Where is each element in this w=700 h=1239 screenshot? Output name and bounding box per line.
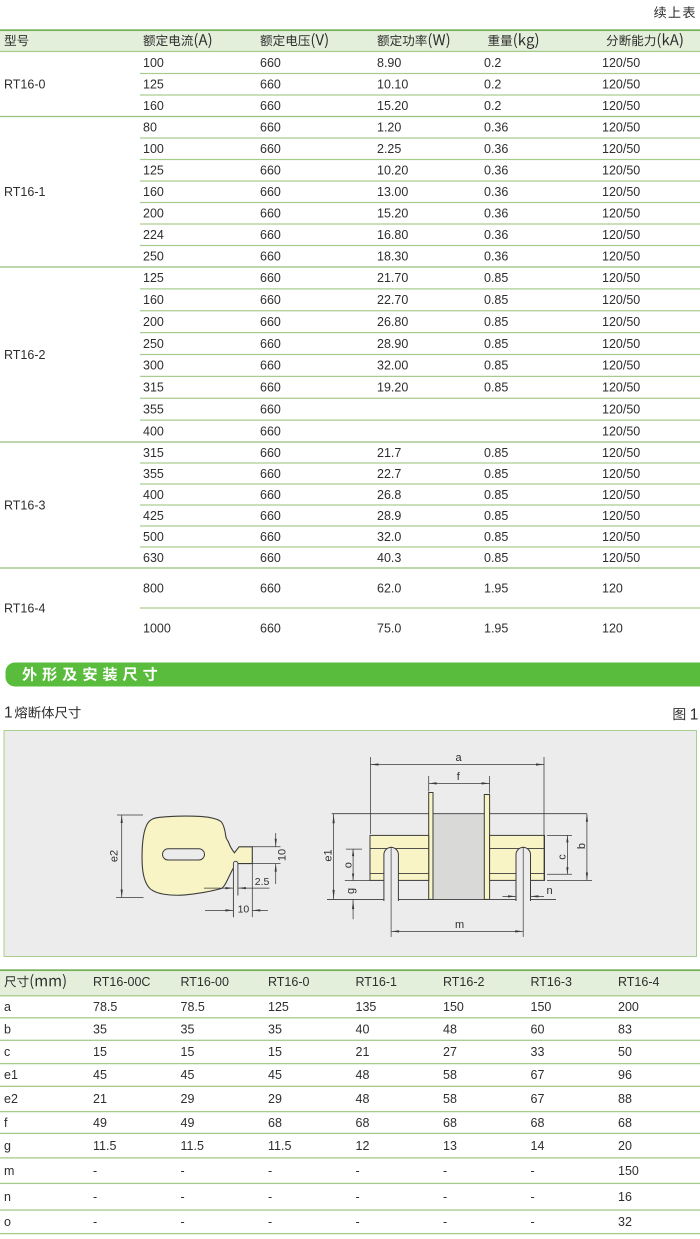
svg-text:160: 160 <box>143 99 164 113</box>
svg-text:96: 96 <box>618 1068 632 1082</box>
svg-text:120/50: 120/50 <box>602 207 640 221</box>
svg-text:120/50: 120/50 <box>602 315 640 329</box>
svg-text:660: 660 <box>260 424 281 438</box>
svg-text:45: 45 <box>181 1068 195 1082</box>
svg-text:-: - <box>181 1215 185 1229</box>
svg-text:35: 35 <box>181 1022 195 1036</box>
svg-text:120/50: 120/50 <box>602 403 640 417</box>
svg-text:2.5: 2.5 <box>255 876 270 888</box>
svg-text:0.85: 0.85 <box>484 467 508 481</box>
svg-text:11.5: 11.5 <box>181 1139 204 1153</box>
svg-text:b: b <box>4 1022 11 1036</box>
svg-text:28.90: 28.90 <box>377 337 408 351</box>
svg-text:10: 10 <box>277 849 289 861</box>
svg-text:b: b <box>576 843 588 849</box>
svg-text:32.00: 32.00 <box>377 359 408 373</box>
svg-text:-: - <box>356 1215 360 1229</box>
svg-text:120/50: 120/50 <box>602 142 640 156</box>
svg-text:22.7: 22.7 <box>377 467 401 481</box>
svg-text:0.36: 0.36 <box>484 250 508 264</box>
svg-text:11.5: 11.5 <box>93 1139 116 1153</box>
svg-text:-: - <box>531 1215 535 1229</box>
svg-text:660: 660 <box>260 185 281 199</box>
svg-text:1.95: 1.95 <box>484 621 508 635</box>
svg-text:e1: e1 <box>4 1068 18 1082</box>
svg-text:200: 200 <box>143 207 164 221</box>
svg-text:120/50: 120/50 <box>602 446 640 460</box>
svg-text:58: 58 <box>443 1068 457 1082</box>
svg-text:135: 135 <box>356 1000 377 1014</box>
svg-text:120/50: 120/50 <box>602 228 640 242</box>
svg-text:150: 150 <box>618 1164 639 1178</box>
svg-text:m: m <box>455 919 464 931</box>
svg-text:660: 660 <box>260 530 281 544</box>
svg-text:0.85: 0.85 <box>484 488 508 502</box>
svg-text:a: a <box>456 752 463 764</box>
svg-text:-: - <box>93 1190 97 1204</box>
svg-text:75.0: 75.0 <box>377 621 401 635</box>
svg-text:160: 160 <box>143 185 164 199</box>
svg-text:0.36: 0.36 <box>484 207 508 221</box>
svg-text:150: 150 <box>531 1000 552 1014</box>
svg-text:67: 67 <box>531 1068 545 1082</box>
svg-text:660: 660 <box>260 621 281 635</box>
svg-text:0.36: 0.36 <box>484 228 508 242</box>
svg-text:-: - <box>93 1164 97 1178</box>
svg-text:-: - <box>268 1215 272 1229</box>
svg-text:o: o <box>4 1215 11 1229</box>
svg-text:40: 40 <box>356 1022 370 1036</box>
svg-text:RT16-00: RT16-00 <box>181 975 229 989</box>
svg-text:500: 500 <box>143 530 164 544</box>
svg-text:120/50: 120/50 <box>602 381 640 395</box>
svg-text:29: 29 <box>268 1092 282 1106</box>
svg-text:120: 120 <box>602 581 623 595</box>
svg-text:10.10: 10.10 <box>377 78 408 92</box>
svg-text:0.85: 0.85 <box>484 337 508 351</box>
svg-text:22.70: 22.70 <box>377 293 408 307</box>
svg-text:62.0: 62.0 <box>377 581 401 595</box>
svg-text:660: 660 <box>260 293 281 307</box>
svg-text:1: 1 <box>690 706 699 723</box>
svg-text:c: c <box>557 854 569 860</box>
svg-text:33: 33 <box>531 1045 545 1059</box>
svg-text:e2: e2 <box>4 1092 18 1106</box>
svg-text:660: 660 <box>260 337 281 351</box>
svg-text:15: 15 <box>181 1045 195 1059</box>
svg-text:660: 660 <box>260 56 281 70</box>
svg-text:250: 250 <box>143 250 164 264</box>
svg-text:-: - <box>443 1164 447 1178</box>
svg-text:78.5: 78.5 <box>93 1000 117 1014</box>
svg-text:100: 100 <box>143 56 164 70</box>
svg-text:120/50: 120/50 <box>602 467 640 481</box>
svg-text:e2: e2 <box>109 850 121 862</box>
svg-text:12: 12 <box>356 1139 370 1153</box>
svg-text:m: m <box>4 1164 14 1178</box>
svg-text:13: 13 <box>443 1139 457 1153</box>
svg-text:120/50: 120/50 <box>602 185 640 199</box>
svg-text:660: 660 <box>260 467 281 481</box>
svg-text:1.95: 1.95 <box>484 581 508 595</box>
svg-text:58: 58 <box>443 1092 457 1106</box>
svg-text:50: 50 <box>618 1045 632 1059</box>
svg-text:a: a <box>4 1000 11 1014</box>
svg-text:RT16-4: RT16-4 <box>618 975 660 989</box>
svg-text:800: 800 <box>143 581 164 595</box>
svg-text:630: 630 <box>143 551 164 565</box>
svg-text:0.85: 0.85 <box>484 381 508 395</box>
svg-text:425: 425 <box>143 509 164 523</box>
svg-text:0.36: 0.36 <box>484 185 508 199</box>
svg-text:315: 315 <box>143 446 164 460</box>
svg-text:67: 67 <box>531 1092 545 1106</box>
svg-text:660: 660 <box>260 381 281 395</box>
svg-text:27: 27 <box>443 1045 457 1059</box>
svg-text:14: 14 <box>531 1139 545 1153</box>
svg-text:400: 400 <box>143 488 164 502</box>
svg-text:660: 660 <box>260 164 281 178</box>
svg-text:28.9: 28.9 <box>377 509 401 523</box>
svg-text:120/50: 120/50 <box>602 337 640 351</box>
svg-text:1.20: 1.20 <box>377 121 401 135</box>
svg-text:120/50: 120/50 <box>602 551 640 565</box>
svg-text:68: 68 <box>443 1116 457 1130</box>
svg-text:RT16-3: RT16-3 <box>531 975 573 989</box>
svg-text:0.36: 0.36 <box>484 164 508 178</box>
svg-text:g: g <box>345 888 357 894</box>
svg-text:120: 120 <box>602 621 623 635</box>
svg-text:400: 400 <box>143 424 164 438</box>
svg-text:660: 660 <box>260 315 281 329</box>
svg-text:68: 68 <box>356 1116 370 1130</box>
svg-text:c: c <box>4 1045 10 1059</box>
svg-text:19.20: 19.20 <box>377 381 408 395</box>
svg-text:RT16-4: RT16-4 <box>4 601 46 615</box>
svg-text:40.3: 40.3 <box>377 551 401 565</box>
svg-text:8.90: 8.90 <box>377 56 401 70</box>
svg-text:-: - <box>531 1190 535 1204</box>
svg-text:355: 355 <box>143 467 164 481</box>
svg-text:660: 660 <box>260 99 281 113</box>
svg-text:49: 49 <box>181 1116 195 1130</box>
svg-text:0.36: 0.36 <box>484 121 508 135</box>
svg-text:60: 60 <box>531 1022 545 1036</box>
svg-text:26.80: 26.80 <box>377 315 408 329</box>
svg-text:0.36: 0.36 <box>484 142 508 156</box>
svg-text:13.00: 13.00 <box>377 185 408 199</box>
svg-text:250: 250 <box>143 337 164 351</box>
svg-text:68: 68 <box>531 1116 545 1130</box>
svg-text:15: 15 <box>268 1045 282 1059</box>
svg-text:RT16-2: RT16-2 <box>443 975 485 989</box>
svg-text:120/50: 120/50 <box>602 424 640 438</box>
svg-text:32.0: 32.0 <box>377 530 401 544</box>
svg-text:11.5: 11.5 <box>268 1139 291 1153</box>
svg-text:n: n <box>547 885 553 897</box>
svg-text:-: - <box>356 1164 360 1178</box>
svg-text:80: 80 <box>143 121 157 135</box>
svg-text:16: 16 <box>618 1190 632 1204</box>
svg-text:g: g <box>4 1139 11 1153</box>
svg-text:21: 21 <box>93 1092 107 1106</box>
svg-text:RT16-0: RT16-0 <box>4 78 46 92</box>
svg-text:45: 45 <box>93 1068 107 1082</box>
svg-text:660: 660 <box>260 228 281 242</box>
svg-text:120/50: 120/50 <box>602 250 640 264</box>
svg-text:125: 125 <box>143 78 164 92</box>
svg-text:35: 35 <box>93 1022 107 1036</box>
svg-text:0.85: 0.85 <box>484 315 508 329</box>
svg-text:RT16-1: RT16-1 <box>356 975 398 989</box>
svg-text:660: 660 <box>260 359 281 373</box>
svg-text:48: 48 <box>443 1022 457 1036</box>
svg-text:88: 88 <box>618 1092 632 1106</box>
svg-text:0.2: 0.2 <box>484 78 501 92</box>
svg-text:-: - <box>181 1164 185 1178</box>
svg-text:83: 83 <box>618 1022 632 1036</box>
svg-text:0.85: 0.85 <box>484 551 508 565</box>
svg-text:0.85: 0.85 <box>484 293 508 307</box>
svg-text:0.85: 0.85 <box>484 530 508 544</box>
svg-text:-: - <box>181 1190 185 1204</box>
svg-text:-: - <box>443 1215 447 1229</box>
svg-text:125: 125 <box>143 164 164 178</box>
svg-text:1000: 1000 <box>143 621 171 635</box>
svg-text:-: - <box>443 1190 447 1204</box>
svg-text:2.25: 2.25 <box>377 142 401 156</box>
svg-text:660: 660 <box>260 403 281 417</box>
svg-text:o: o <box>342 862 354 868</box>
svg-text:120/50: 120/50 <box>602 56 640 70</box>
svg-text:125: 125 <box>268 1000 289 1014</box>
svg-text:-: - <box>356 1190 360 1204</box>
svg-text:RT16-3: RT16-3 <box>4 498 46 512</box>
svg-text:660: 660 <box>260 488 281 502</box>
svg-text:16.80: 16.80 <box>377 228 408 242</box>
svg-text:120/50: 120/50 <box>602 164 640 178</box>
svg-text:RT16-1: RT16-1 <box>4 185 46 199</box>
svg-text:68: 68 <box>268 1116 282 1130</box>
svg-text:120/50: 120/50 <box>602 271 640 285</box>
svg-text:15.20: 15.20 <box>377 207 408 221</box>
svg-text:-: - <box>93 1215 97 1229</box>
svg-text:68: 68 <box>618 1116 632 1130</box>
svg-text:10.20: 10.20 <box>377 164 408 178</box>
svg-text:-: - <box>268 1164 272 1178</box>
svg-text:21.70: 21.70 <box>377 271 408 285</box>
svg-text:RT16-2: RT16-2 <box>4 348 46 362</box>
svg-text:120/50: 120/50 <box>602 530 640 544</box>
svg-text:355: 355 <box>143 403 164 417</box>
svg-text:0.85: 0.85 <box>484 359 508 373</box>
svg-text:660: 660 <box>260 446 281 460</box>
svg-text:300: 300 <box>143 359 164 373</box>
svg-text:49: 49 <box>93 1116 107 1130</box>
svg-text:200: 200 <box>143 315 164 329</box>
svg-text:0.85: 0.85 <box>484 446 508 460</box>
svg-text:120/50: 120/50 <box>602 359 640 373</box>
svg-text:26.8: 26.8 <box>377 488 401 502</box>
svg-text:120/50: 120/50 <box>602 121 640 135</box>
svg-text:660: 660 <box>260 121 281 135</box>
svg-text:-: - <box>531 1164 535 1178</box>
svg-text:100: 100 <box>143 142 164 156</box>
svg-text:1: 1 <box>4 705 13 722</box>
svg-text:660: 660 <box>260 551 281 565</box>
svg-text:0.85: 0.85 <box>484 509 508 523</box>
svg-text:660: 660 <box>260 581 281 595</box>
svg-text:660: 660 <box>260 250 281 264</box>
svg-text:45: 45 <box>268 1068 282 1082</box>
svg-text:35: 35 <box>268 1022 282 1036</box>
svg-text:120/50: 120/50 <box>602 99 640 113</box>
svg-text:n: n <box>4 1190 11 1204</box>
svg-text:0.2: 0.2 <box>484 56 501 70</box>
svg-text:10: 10 <box>238 904 250 916</box>
svg-text:78.5: 78.5 <box>181 1000 205 1014</box>
svg-text:21.7: 21.7 <box>377 446 401 460</box>
svg-text:f: f <box>4 1116 8 1130</box>
svg-text:e1: e1 <box>323 849 335 861</box>
svg-text:120/50: 120/50 <box>602 488 640 502</box>
svg-text:18.30: 18.30 <box>377 250 408 264</box>
svg-text:200: 200 <box>618 1000 639 1014</box>
svg-text:120/50: 120/50 <box>602 293 640 307</box>
svg-text:224: 224 <box>143 228 164 242</box>
svg-text:0.2: 0.2 <box>484 99 501 113</box>
svg-text:48: 48 <box>356 1068 370 1082</box>
svg-text:20: 20 <box>618 1139 632 1153</box>
svg-text:0.85: 0.85 <box>484 271 508 285</box>
svg-text:315: 315 <box>143 381 164 395</box>
svg-text:15: 15 <box>93 1045 107 1059</box>
svg-text:32: 32 <box>618 1215 632 1229</box>
svg-text:120/50: 120/50 <box>602 509 640 523</box>
svg-text:21: 21 <box>356 1045 370 1059</box>
svg-text:29: 29 <box>181 1092 195 1106</box>
svg-text:660: 660 <box>260 142 281 156</box>
svg-text:-: - <box>268 1190 272 1204</box>
svg-text:660: 660 <box>260 207 281 221</box>
svg-text:660: 660 <box>260 78 281 92</box>
svg-text:660: 660 <box>260 271 281 285</box>
svg-text:15.20: 15.20 <box>377 99 408 113</box>
svg-text:125: 125 <box>143 271 164 285</box>
svg-text:RT16-0: RT16-0 <box>268 975 310 989</box>
svg-text:160: 160 <box>143 293 164 307</box>
svg-text:660: 660 <box>260 509 281 523</box>
svg-text:120/50: 120/50 <box>602 78 640 92</box>
svg-text:48: 48 <box>356 1092 370 1106</box>
svg-text:RT16-00C: RT16-00C <box>93 975 150 989</box>
svg-text:150: 150 <box>443 1000 464 1014</box>
